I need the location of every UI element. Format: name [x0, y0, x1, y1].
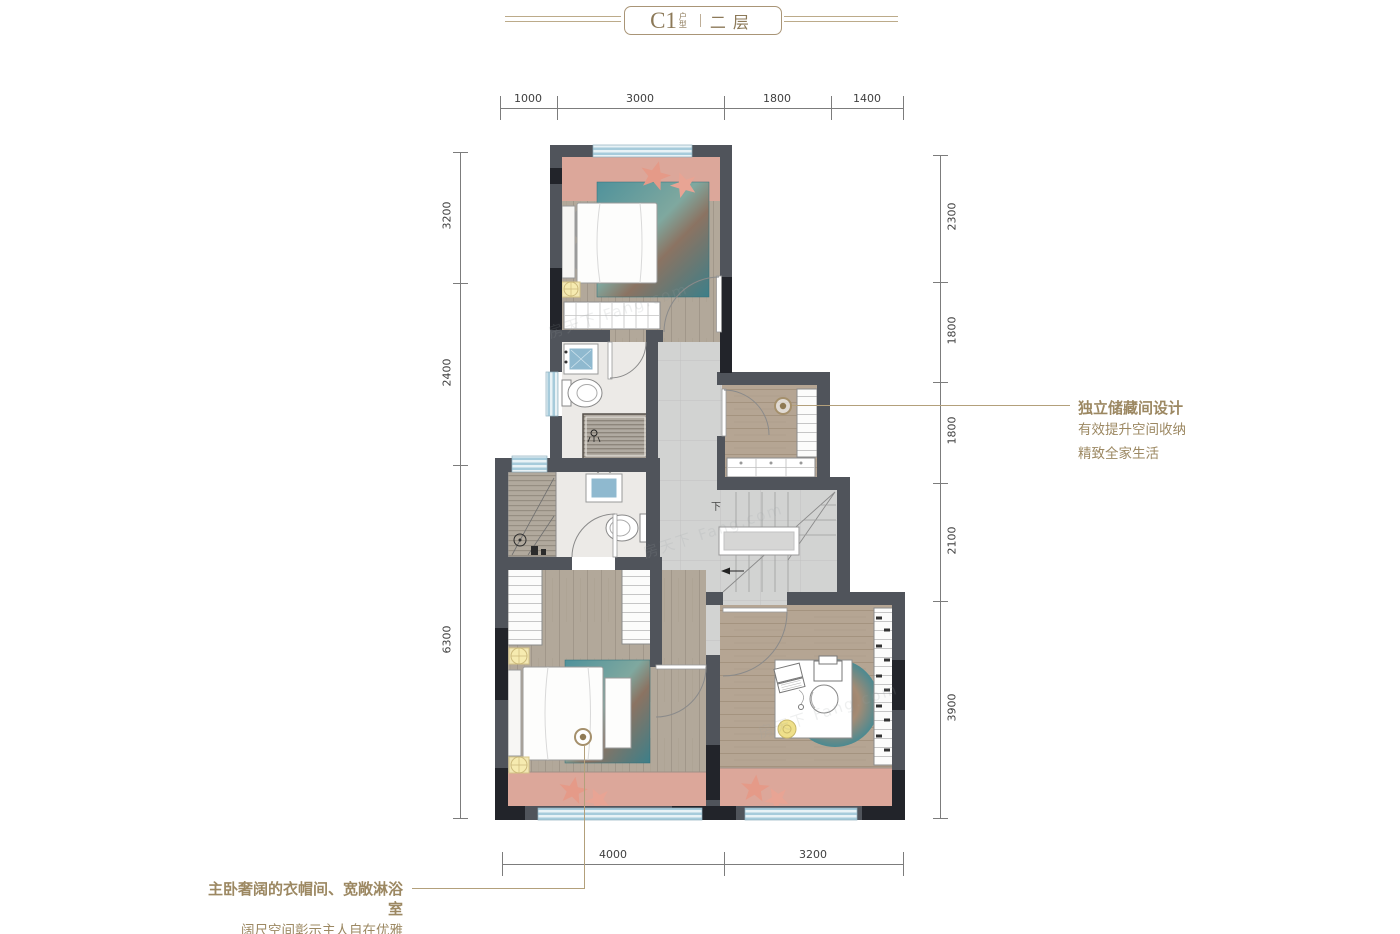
dim-label: 4000: [588, 848, 638, 861]
master-annotation-title: 主卧奢阔的衣帽间、宽敞淋浴室: [198, 879, 403, 919]
study-balcony-window: [745, 808, 857, 820]
master-bath-door-leaf: [613, 514, 617, 557]
bed-bench: [605, 678, 631, 748]
dim-line-left: [460, 152, 461, 818]
bath1-door-leaf: [608, 342, 612, 379]
bed-headboard: [562, 206, 575, 278]
dim-label: 3200: [441, 191, 454, 241]
toilet: [606, 515, 638, 541]
dim-tick: [453, 152, 468, 153]
wardrobe-left: [508, 561, 542, 645]
storage-leader-line: [792, 405, 1070, 406]
storage-annotation: 独立储藏间设计 有效提升空间收纳 精致全家生活: [1078, 398, 1298, 466]
dim-label: 3900: [946, 683, 959, 733]
dim-tick: [933, 601, 948, 602]
dim-tick: [933, 483, 948, 484]
title-divider: |: [699, 12, 702, 29]
title-deco-line-left: [505, 16, 621, 22]
bed-mattress: [577, 203, 657, 283]
stair-direction-label: 下: [711, 502, 721, 513]
storage-annotation-title: 独立储藏间设计: [1078, 398, 1298, 418]
floorplan-page: C1 户型 | 二层 1000 3000 1800 1400 4000 3200…: [0, 0, 1400, 934]
dim-tick: [933, 382, 948, 383]
dim-tick: [724, 96, 725, 120]
dim-tick: [724, 852, 725, 876]
master-marker-dot: [580, 734, 586, 740]
dim-label: 1000: [503, 92, 553, 105]
dim-tick: [502, 852, 503, 876]
master-leader-vline: [584, 746, 585, 889]
unit-code: C1: [650, 9, 677, 32]
master-annotation: 主卧奢阔的衣帽间、宽敞淋浴室 阔尺空间彰示主人自在优雅: [198, 879, 403, 934]
dim-label: 1800: [752, 92, 802, 105]
dim-line-top: [500, 108, 903, 109]
dim-tick: [453, 465, 468, 466]
dim-label: 3200: [788, 848, 838, 861]
mouse: [799, 705, 804, 710]
dim-label: 2400: [441, 348, 454, 398]
dim-tick: [453, 818, 468, 819]
unit-code-suffix: 户型: [679, 13, 689, 29]
master-bedroom-door-leaf: [656, 665, 706, 669]
dim-label: 3000: [615, 92, 665, 105]
stool: [778, 720, 796, 738]
floor-plan: 下: [490, 140, 910, 830]
dim-tick: [903, 852, 904, 876]
dim-label: 1400: [842, 92, 892, 105]
master-balcony: [508, 772, 706, 806]
master-bath-window: [512, 456, 547, 472]
dim-label: 1800: [946, 306, 959, 356]
storage-door-leaf: [722, 389, 726, 436]
shower: [583, 414, 648, 459]
bedroom2-door-leaf: [717, 276, 722, 332]
dim-tick: [557, 96, 558, 120]
bed-headboard: [508, 670, 521, 756]
dim-tick: [933, 282, 948, 283]
dim-tick: [453, 283, 468, 284]
dim-tick: [933, 818, 948, 819]
dim-line-right: [940, 155, 941, 818]
dim-tick: [500, 96, 501, 120]
floor-label: 二层: [706, 9, 756, 33]
study-door-leaf: [723, 608, 787, 612]
storage-shelf-right: [797, 389, 817, 457]
dim-label: 2300: [946, 192, 959, 242]
bath1-window: [546, 372, 558, 416]
dim-label: 2100: [946, 516, 959, 566]
bookshelf: [874, 608, 893, 765]
dim-label: 6300: [441, 615, 454, 665]
bedroom2-window: [593, 145, 692, 157]
title-deco-line-right: [784, 16, 898, 22]
storage-marker-dot: [780, 403, 786, 409]
dim-tick: [903, 96, 904, 120]
desk-chair: [810, 685, 838, 713]
dim-label: 1800: [946, 406, 959, 456]
dim-line-bottom: [502, 864, 903, 865]
master-balcony-window: [538, 808, 702, 820]
dim-tick: [831, 96, 832, 120]
dim-tick: [933, 155, 948, 156]
sink-basin: [591, 478, 617, 498]
master-leader-hline: [412, 888, 585, 889]
title-box: C1 户型 | 二层: [624, 6, 782, 35]
